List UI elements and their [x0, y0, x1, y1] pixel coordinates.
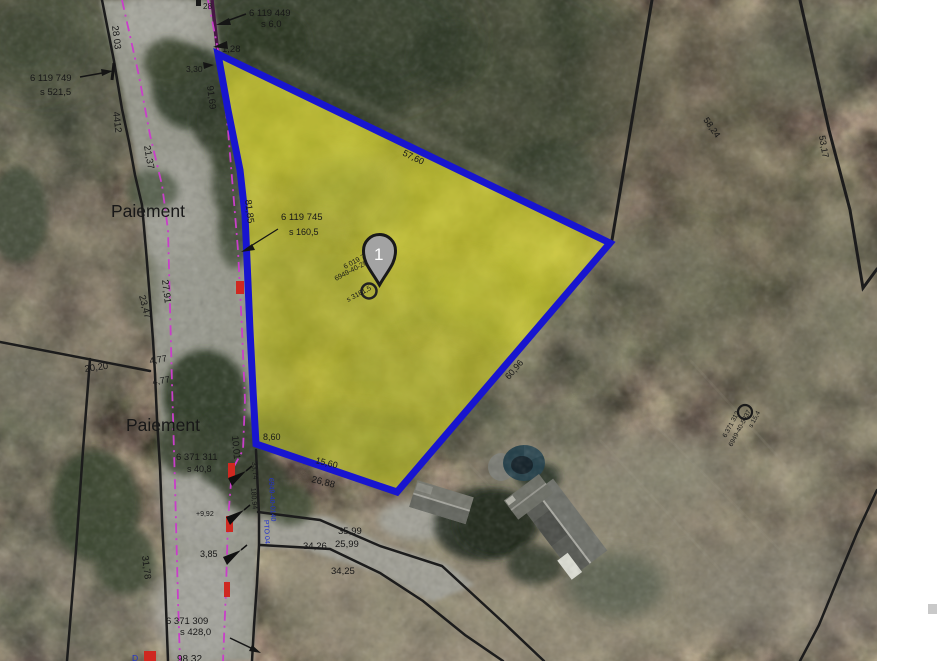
svg-text:s 40,8: s 40,8	[187, 464, 212, 474]
svg-text:Paiement: Paiement	[126, 415, 200, 435]
svg-text:6 119 745: 6 119 745	[281, 212, 323, 223]
svg-text:6 371 311: 6 371 311	[176, 452, 218, 463]
svg-text:25,99: 25,99	[335, 539, 359, 550]
svg-text:10,01: 10,01	[229, 435, 242, 460]
svg-text:s 428,0: s 428,0	[180, 627, 211, 638]
svg-text:8,60: 8,60	[263, 432, 281, 442]
svg-text:s 160,5: s 160,5	[289, 227, 319, 237]
svg-text:3,30: 3,30	[186, 64, 203, 74]
svg-text:6 119 449: 6 119 449	[249, 8, 291, 19]
svg-text:s 521,5: s 521,5	[40, 87, 71, 98]
svg-text:28: 28	[203, 2, 212, 11]
svg-text:1: 1	[374, 245, 383, 264]
svg-text:6 119 749: 6 119 749	[30, 73, 72, 84]
svg-text:+9,92: +9,92	[196, 511, 214, 518]
svg-text:6 371 309: 6 371 309	[166, 616, 208, 627]
svg-text:34,26: 34,26	[303, 541, 327, 552]
svg-text:3,85: 3,85	[200, 549, 218, 559]
svg-text:Paiement: Paiement	[111, 201, 185, 221]
svg-text:34,25: 34,25	[331, 566, 355, 577]
svg-text:35,99: 35,99	[338, 526, 362, 537]
svg-text:s 6,0: s 6,0	[261, 19, 282, 30]
svg-text:PTO 04: PTO 04	[262, 520, 270, 544]
